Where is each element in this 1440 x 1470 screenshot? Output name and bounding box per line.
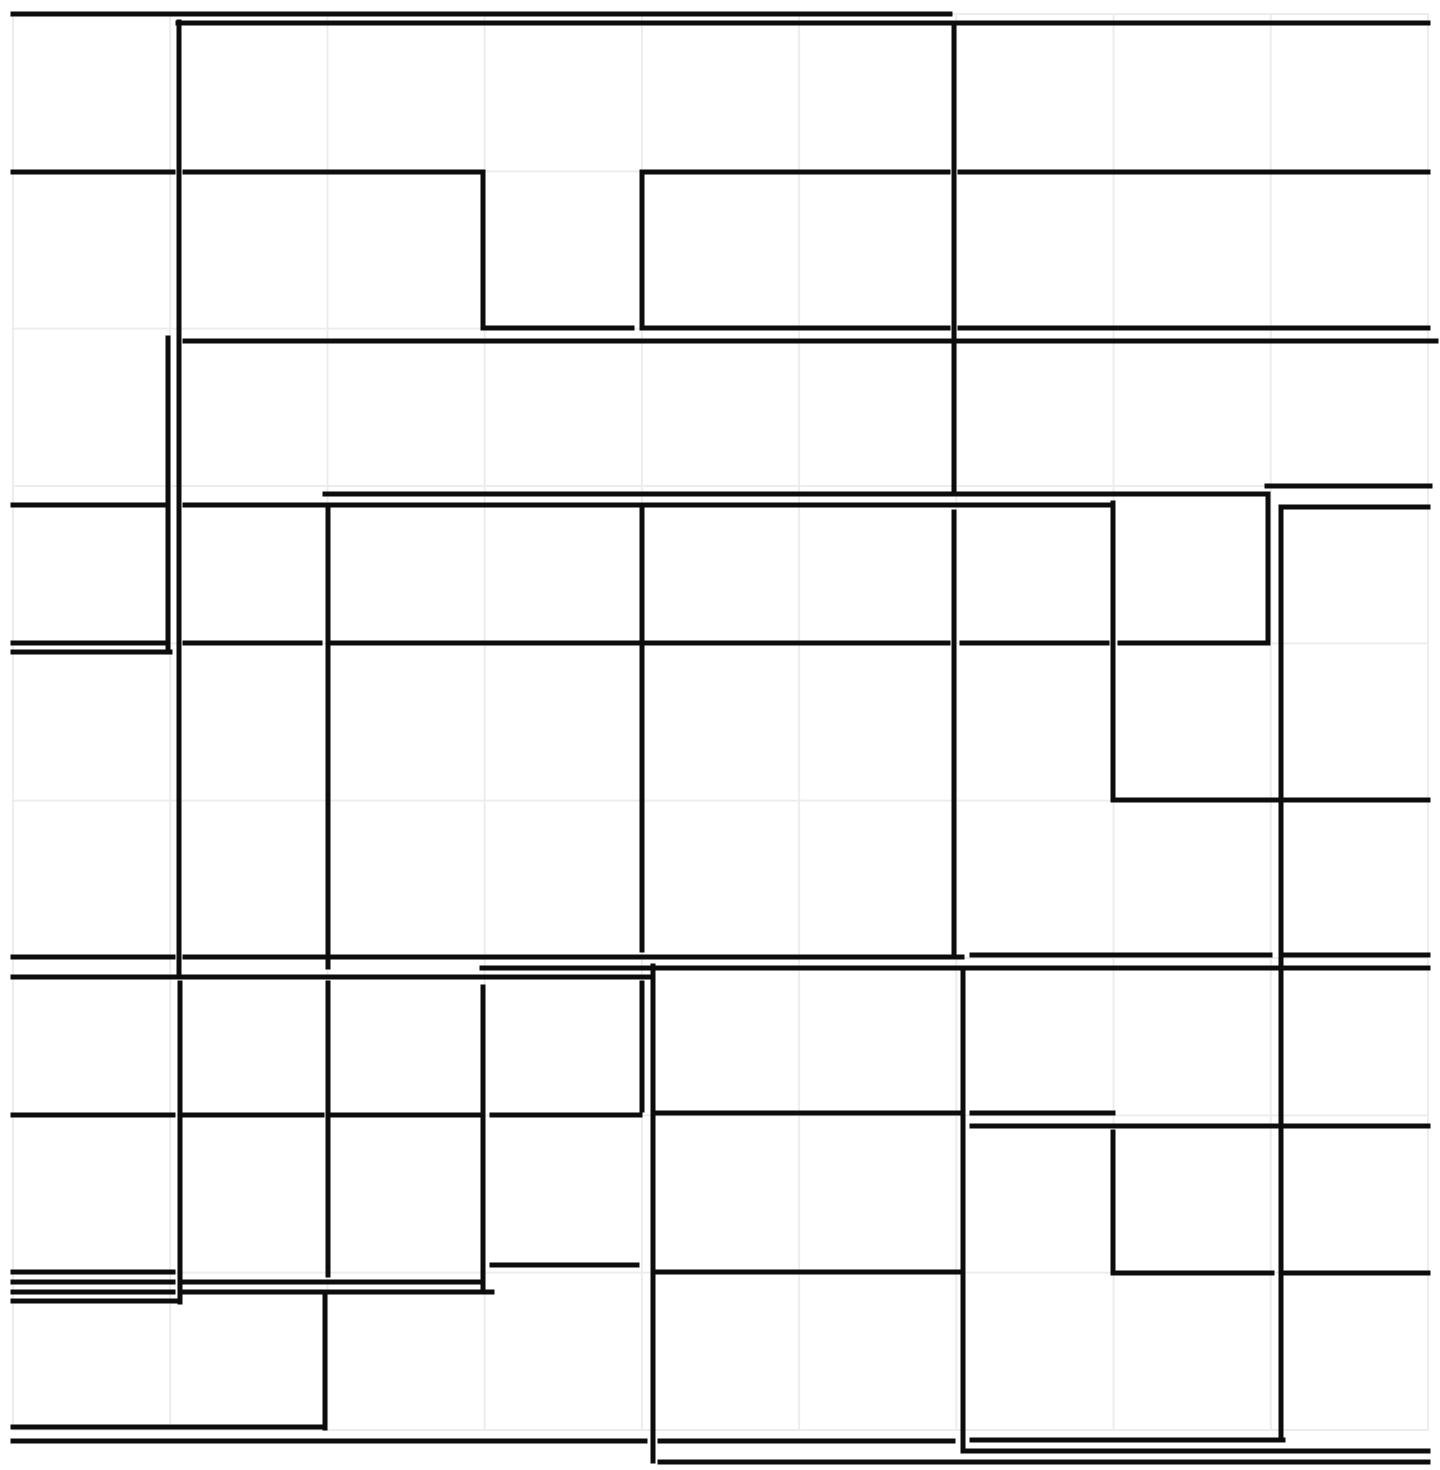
line-maze-canvas bbox=[0, 0, 1440, 1470]
line-maze-drawing bbox=[0, 0, 1440, 1470]
